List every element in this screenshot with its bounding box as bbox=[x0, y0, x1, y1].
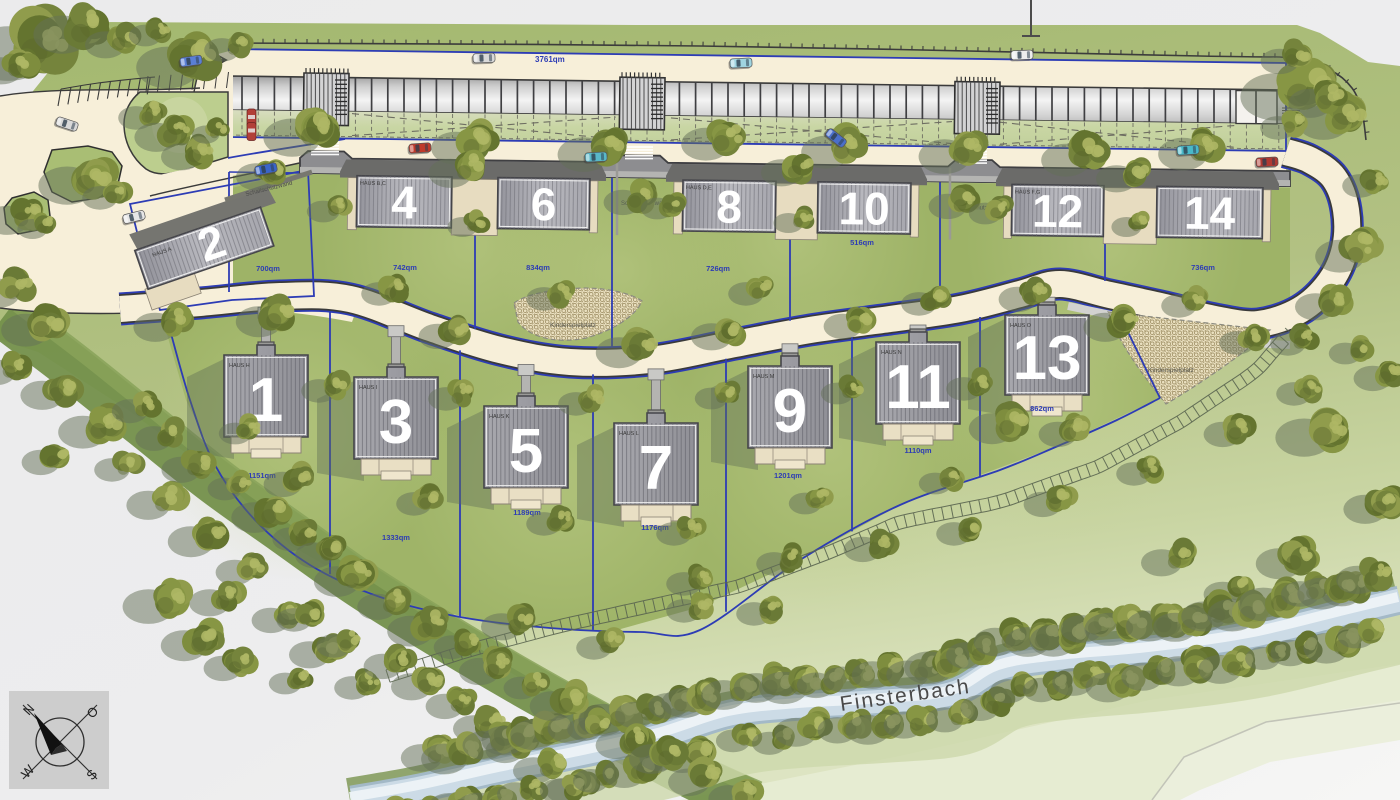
svg-text:3761qm: 3761qm bbox=[535, 55, 565, 64]
svg-text:1201qm: 1201qm bbox=[774, 471, 802, 480]
svg-text:1333qm: 1333qm bbox=[382, 533, 410, 542]
svg-text:862qm: 862qm bbox=[1030, 404, 1054, 413]
svg-text:726qm: 726qm bbox=[706, 264, 730, 273]
svg-text:HAUS M: HAUS M bbox=[753, 374, 775, 380]
svg-text:11: 11 bbox=[885, 353, 951, 422]
svg-text:14: 14 bbox=[1184, 187, 1236, 240]
svg-text:4: 4 bbox=[391, 176, 418, 228]
svg-text:9: 9 bbox=[773, 377, 807, 446]
svg-text:HAUS B,C: HAUS B,C bbox=[360, 181, 386, 187]
svg-text:6: 6 bbox=[530, 178, 556, 230]
svg-text:13: 13 bbox=[1013, 324, 1082, 393]
svg-text:516qm: 516qm bbox=[850, 238, 874, 247]
svg-text:5: 5 bbox=[509, 417, 543, 486]
svg-text:834qm: 834qm bbox=[526, 263, 550, 272]
svg-text:700qm: 700qm bbox=[256, 264, 280, 273]
svg-text:HAUS F,G: HAUS F,G bbox=[1015, 189, 1040, 195]
svg-text:HAUS I: HAUS I bbox=[359, 385, 378, 391]
svg-text:HAUS L: HAUS L bbox=[619, 431, 639, 437]
svg-text:742qm: 742qm bbox=[393, 263, 417, 272]
svg-text:Kinderspielplatz: Kinderspielplatz bbox=[550, 322, 596, 329]
svg-text:736qm: 736qm bbox=[1191, 263, 1215, 272]
svg-text:7: 7 bbox=[639, 434, 673, 503]
svg-text:3: 3 bbox=[379, 388, 413, 457]
svg-text:Kinderspielplatz: Kinderspielplatz bbox=[1148, 367, 1194, 374]
svg-text:HAUS D,E: HAUS D,E bbox=[686, 185, 712, 191]
svg-text:HAUS K: HAUS K bbox=[489, 414, 510, 420]
svg-text:1110qm: 1110qm bbox=[904, 446, 931, 455]
svg-text:HAUS H: HAUS H bbox=[229, 363, 250, 369]
svg-text:10: 10 bbox=[838, 182, 890, 235]
svg-text:8: 8 bbox=[716, 180, 742, 232]
